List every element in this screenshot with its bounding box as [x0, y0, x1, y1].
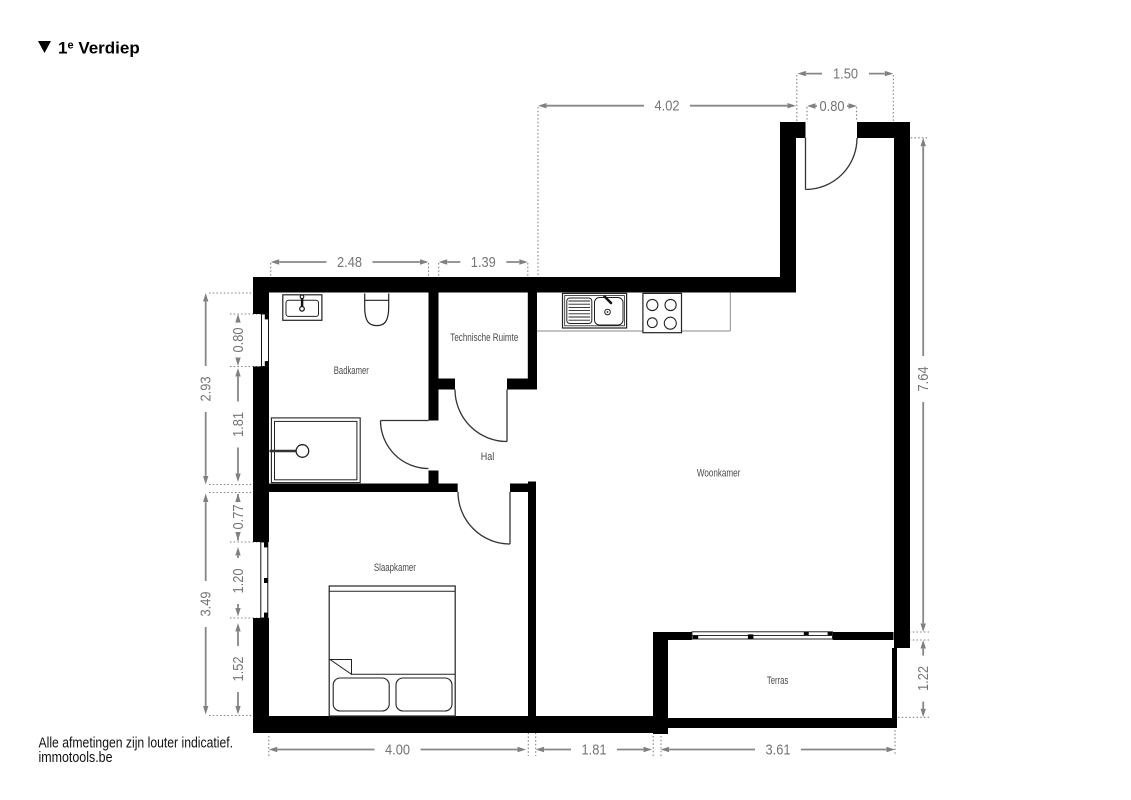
- svg-text:3.49: 3.49: [198, 592, 215, 617]
- svg-text:1.52: 1.52: [230, 657, 247, 682]
- svg-text:Badkamer: Badkamer: [334, 365, 369, 377]
- svg-text:1.39: 1.39: [471, 254, 496, 271]
- svg-text:1.50: 1.50: [833, 66, 858, 83]
- svg-text:1.81: 1.81: [230, 412, 247, 437]
- svg-text:4.00: 4.00: [385, 742, 410, 759]
- svg-text:Hal: Hal: [481, 451, 495, 463]
- svg-text:2.48: 2.48: [337, 254, 362, 271]
- svg-text:1.81: 1.81: [582, 742, 607, 759]
- svg-text:Technische Ruimte: Technische Ruimte: [450, 332, 518, 344]
- svg-text:7.64: 7.64: [915, 367, 932, 392]
- svg-text:Slaapkamer: Slaapkamer: [374, 562, 416, 574]
- svg-text:1.22: 1.22: [915, 666, 932, 691]
- svg-text:immotools.be: immotools.be: [39, 750, 113, 766]
- svg-text:Woonkamer: Woonkamer: [697, 467, 741, 479]
- svg-text:0.80: 0.80: [820, 98, 845, 115]
- svg-text:0.80: 0.80: [230, 328, 247, 353]
- svg-text:3.61: 3.61: [766, 742, 791, 759]
- svg-text:2.93: 2.93: [198, 377, 215, 402]
- svg-text:Terras: Terras: [767, 675, 789, 687]
- svg-text:1.20: 1.20: [230, 569, 247, 594]
- svg-text:4.02: 4.02: [655, 98, 680, 115]
- svg-text:0.77: 0.77: [230, 505, 247, 530]
